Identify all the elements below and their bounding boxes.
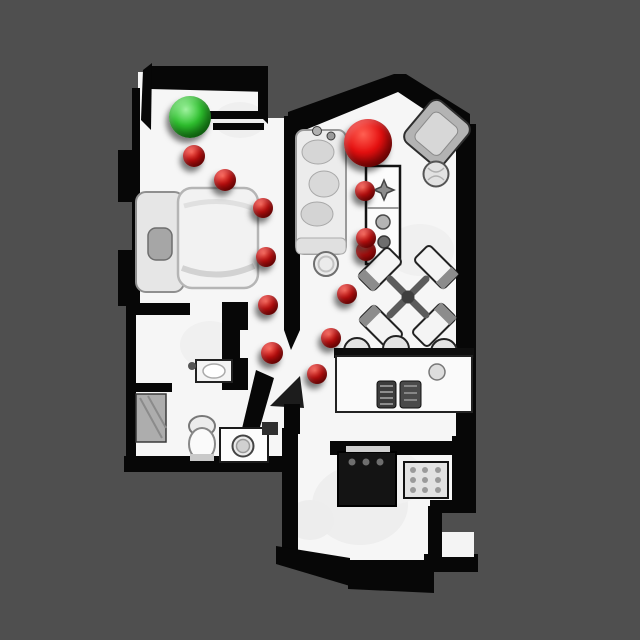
sink-grid [410,467,441,493]
ottoman-top [424,162,449,187]
hall-bottom-wall [130,383,172,392]
bath-sink-basin [203,364,225,378]
plant-pot-icon [376,215,390,229]
sofa-cushion [301,202,333,226]
stove-top-slit [346,446,390,452]
bottom-right-nook [442,532,474,557]
desk-item-book [400,381,421,408]
decor-item [327,132,335,140]
stove-knob [349,459,356,466]
washer-door-inner [237,440,250,453]
decor-item [313,127,322,136]
ottoman [424,162,449,187]
stove-knob [363,459,370,466]
bathroom-left-wall [126,390,136,462]
wardrobe-wall [150,66,268,92]
sofa-cushion [309,171,339,197]
sofa-arm [296,238,346,254]
desk [334,336,474,412]
sofa [296,127,346,255]
wardrobe-shelf-bar [213,123,264,130]
bedroom-bottom-wall [132,303,190,315]
stove-knob [377,459,384,466]
bath-faucet [188,362,196,370]
bottom-mid-wall [348,560,434,593]
sofa-cushion [302,140,334,164]
bed [136,188,258,292]
left-alcove-upper [118,150,140,202]
kitchen-left-wall [282,428,298,562]
scan-viewport[interactable] [0,0,640,640]
floorplan-mesh [0,0,640,640]
wardrobe-shelf-bar [210,111,264,119]
bed-pillow [148,228,172,260]
plant-pot-icon [378,236,390,248]
side-table [314,252,338,276]
hall-left-wall [126,302,136,394]
bath-shelf [262,422,278,435]
toilet-base [190,454,214,461]
table-center-hub [402,291,415,304]
desk-item-bowl [429,364,445,380]
